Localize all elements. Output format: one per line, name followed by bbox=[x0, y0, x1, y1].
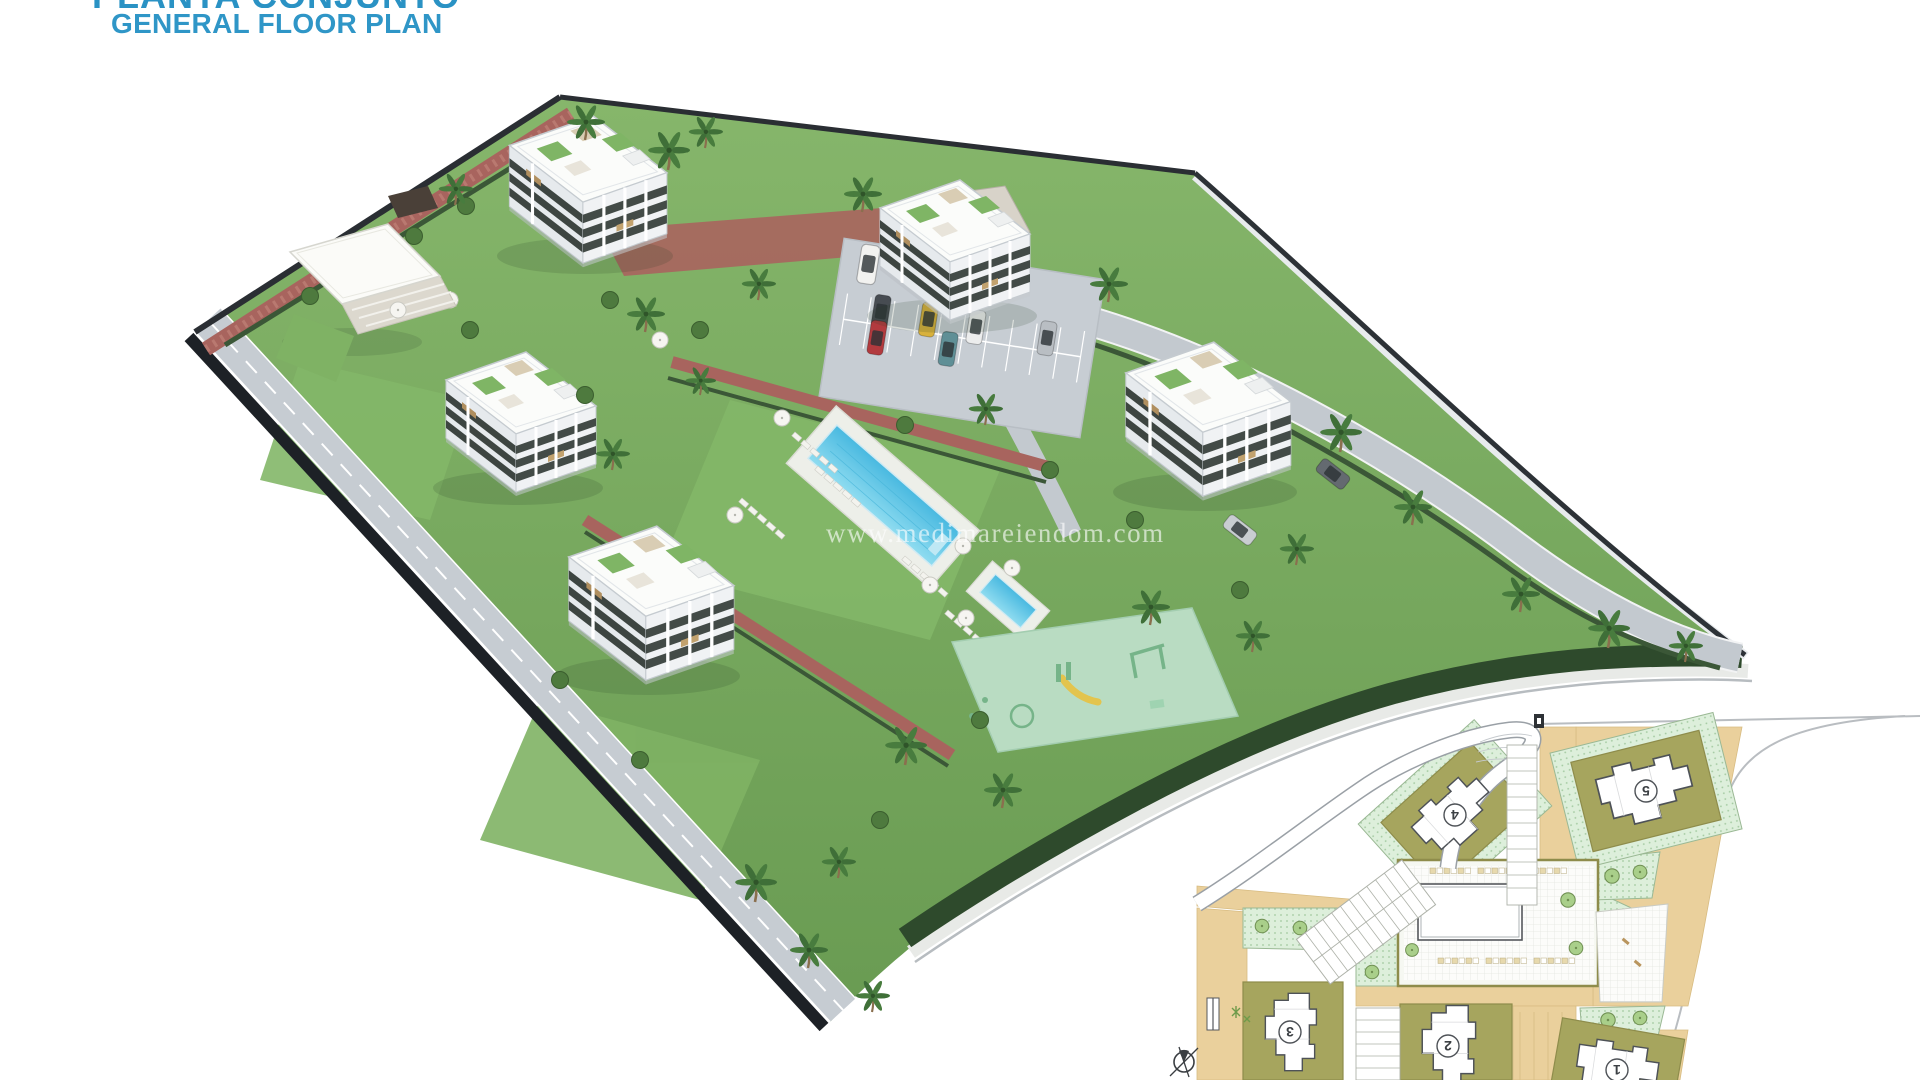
inset-plaza bbox=[1596, 904, 1668, 1002]
north-arrow-icon bbox=[1170, 1047, 1198, 1077]
inset-pool-area bbox=[1398, 860, 1598, 986]
inset-badge-3: 3 bbox=[1279, 1021, 1301, 1043]
inset-badge-4: 4 bbox=[1444, 804, 1466, 826]
brochure-page: PLANTA CONJUNTO GENERAL FLOOR PLAN bbox=[0, 0, 1920, 1080]
inset-badge-1: 1 bbox=[1606, 1059, 1628, 1080]
svg-text:1: 1 bbox=[1613, 1062, 1621, 1078]
inset-floor-plan: 4 5 3 2 1 bbox=[1170, 712, 1920, 1080]
svg-text:3: 3 bbox=[1286, 1024, 1294, 1040]
inset-badge-2: 2 bbox=[1437, 1035, 1459, 1057]
inset-pool bbox=[1418, 884, 1522, 940]
svg-text:2: 2 bbox=[1444, 1038, 1452, 1054]
svg-text:4: 4 bbox=[1451, 807, 1459, 823]
svg-text:5: 5 bbox=[1642, 783, 1650, 799]
inset-badge-5: 5 bbox=[1635, 780, 1657, 802]
site-render-illustration: 4 5 3 2 1 bbox=[0, 0, 1920, 1080]
